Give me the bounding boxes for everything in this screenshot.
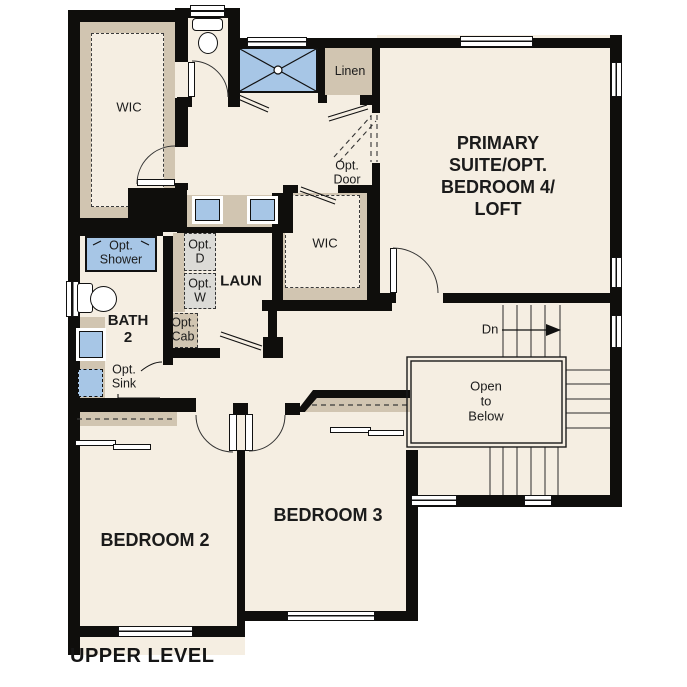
door-leaf-bedroom2	[229, 414, 237, 451]
window	[611, 315, 622, 348]
room-label-bath2: BATH 2	[108, 312, 149, 347]
toilet-bowl	[198, 32, 218, 54]
wall	[318, 95, 327, 103]
room-label-wic-hall: WIC	[312, 237, 337, 252]
window	[611, 62, 622, 97]
wall	[237, 450, 245, 631]
window	[611, 257, 622, 288]
shower	[238, 47, 318, 93]
label-opt-door: Opt. Door	[333, 159, 360, 188]
wall	[163, 236, 173, 365]
wall	[68, 398, 196, 412]
label-opt-shower: Opt. Shower	[100, 239, 142, 268]
wall	[177, 227, 290, 233]
door-leaf-primary	[390, 248, 397, 293]
wall	[68, 10, 180, 22]
wall	[367, 185, 378, 310]
label-opt-cab: Opt. Cab	[171, 316, 195, 345]
window	[411, 495, 457, 506]
door-leaf-wic	[137, 179, 175, 186]
sink	[250, 199, 275, 221]
wall	[443, 293, 620, 303]
door-leaf-toilet	[188, 62, 195, 97]
closet-bypass-door	[330, 427, 371, 433]
wall	[175, 8, 188, 62]
label-opt-dryer: Opt. D	[188, 238, 212, 267]
sink	[195, 199, 220, 221]
wall	[372, 40, 380, 113]
room-label-bedroom2: BEDROOM 2	[100, 530, 209, 552]
room-label-linen: Linen	[335, 64, 366, 78]
door-leaf-bedroom3	[245, 414, 253, 451]
opt-sink-fixture	[78, 369, 103, 397]
label-opt-washer: Opt. W	[188, 277, 212, 306]
bedroom2-closet-shelf	[75, 411, 177, 426]
toilet-tank	[192, 18, 223, 31]
room-label-bedroom3: BEDROOM 3	[273, 505, 382, 527]
wall	[285, 403, 300, 415]
wall	[268, 303, 277, 348]
window	[287, 611, 375, 621]
wall	[318, 38, 325, 95]
room-label-wic-primary: WIC	[116, 101, 141, 116]
window	[247, 37, 307, 47]
closet-bypass-door	[75, 440, 116, 446]
window	[118, 626, 193, 637]
wall	[163, 348, 220, 358]
window	[190, 5, 225, 17]
label-opt-sink: Opt. Sink	[112, 363, 136, 392]
plan-title: UPPER LEVEL	[70, 645, 214, 668]
closet-bypass-door	[368, 430, 404, 436]
toilet-bowl	[90, 286, 117, 312]
wall	[406, 450, 418, 621]
window	[460, 36, 533, 47]
label-stairs-down: Dn	[482, 323, 499, 338]
room-label-primary-suite: PRIMARY SUITE/OPT. BEDROOM 4/ LOFT	[441, 133, 555, 221]
label-open-to-below: Open to Below	[468, 380, 503, 425]
sink	[79, 331, 103, 358]
floor-area	[418, 303, 620, 507]
floor-plan: WIC Linen Opt. Door PRIMARY SUITE/OPT. B…	[0, 0, 687, 687]
window	[524, 495, 552, 506]
wall	[68, 228, 163, 236]
wall	[228, 8, 240, 107]
wall	[177, 97, 192, 107]
wall-chase	[128, 188, 187, 232]
closet-bypass-door	[113, 444, 151, 450]
room-label-laundry: LAUN	[220, 272, 262, 289]
